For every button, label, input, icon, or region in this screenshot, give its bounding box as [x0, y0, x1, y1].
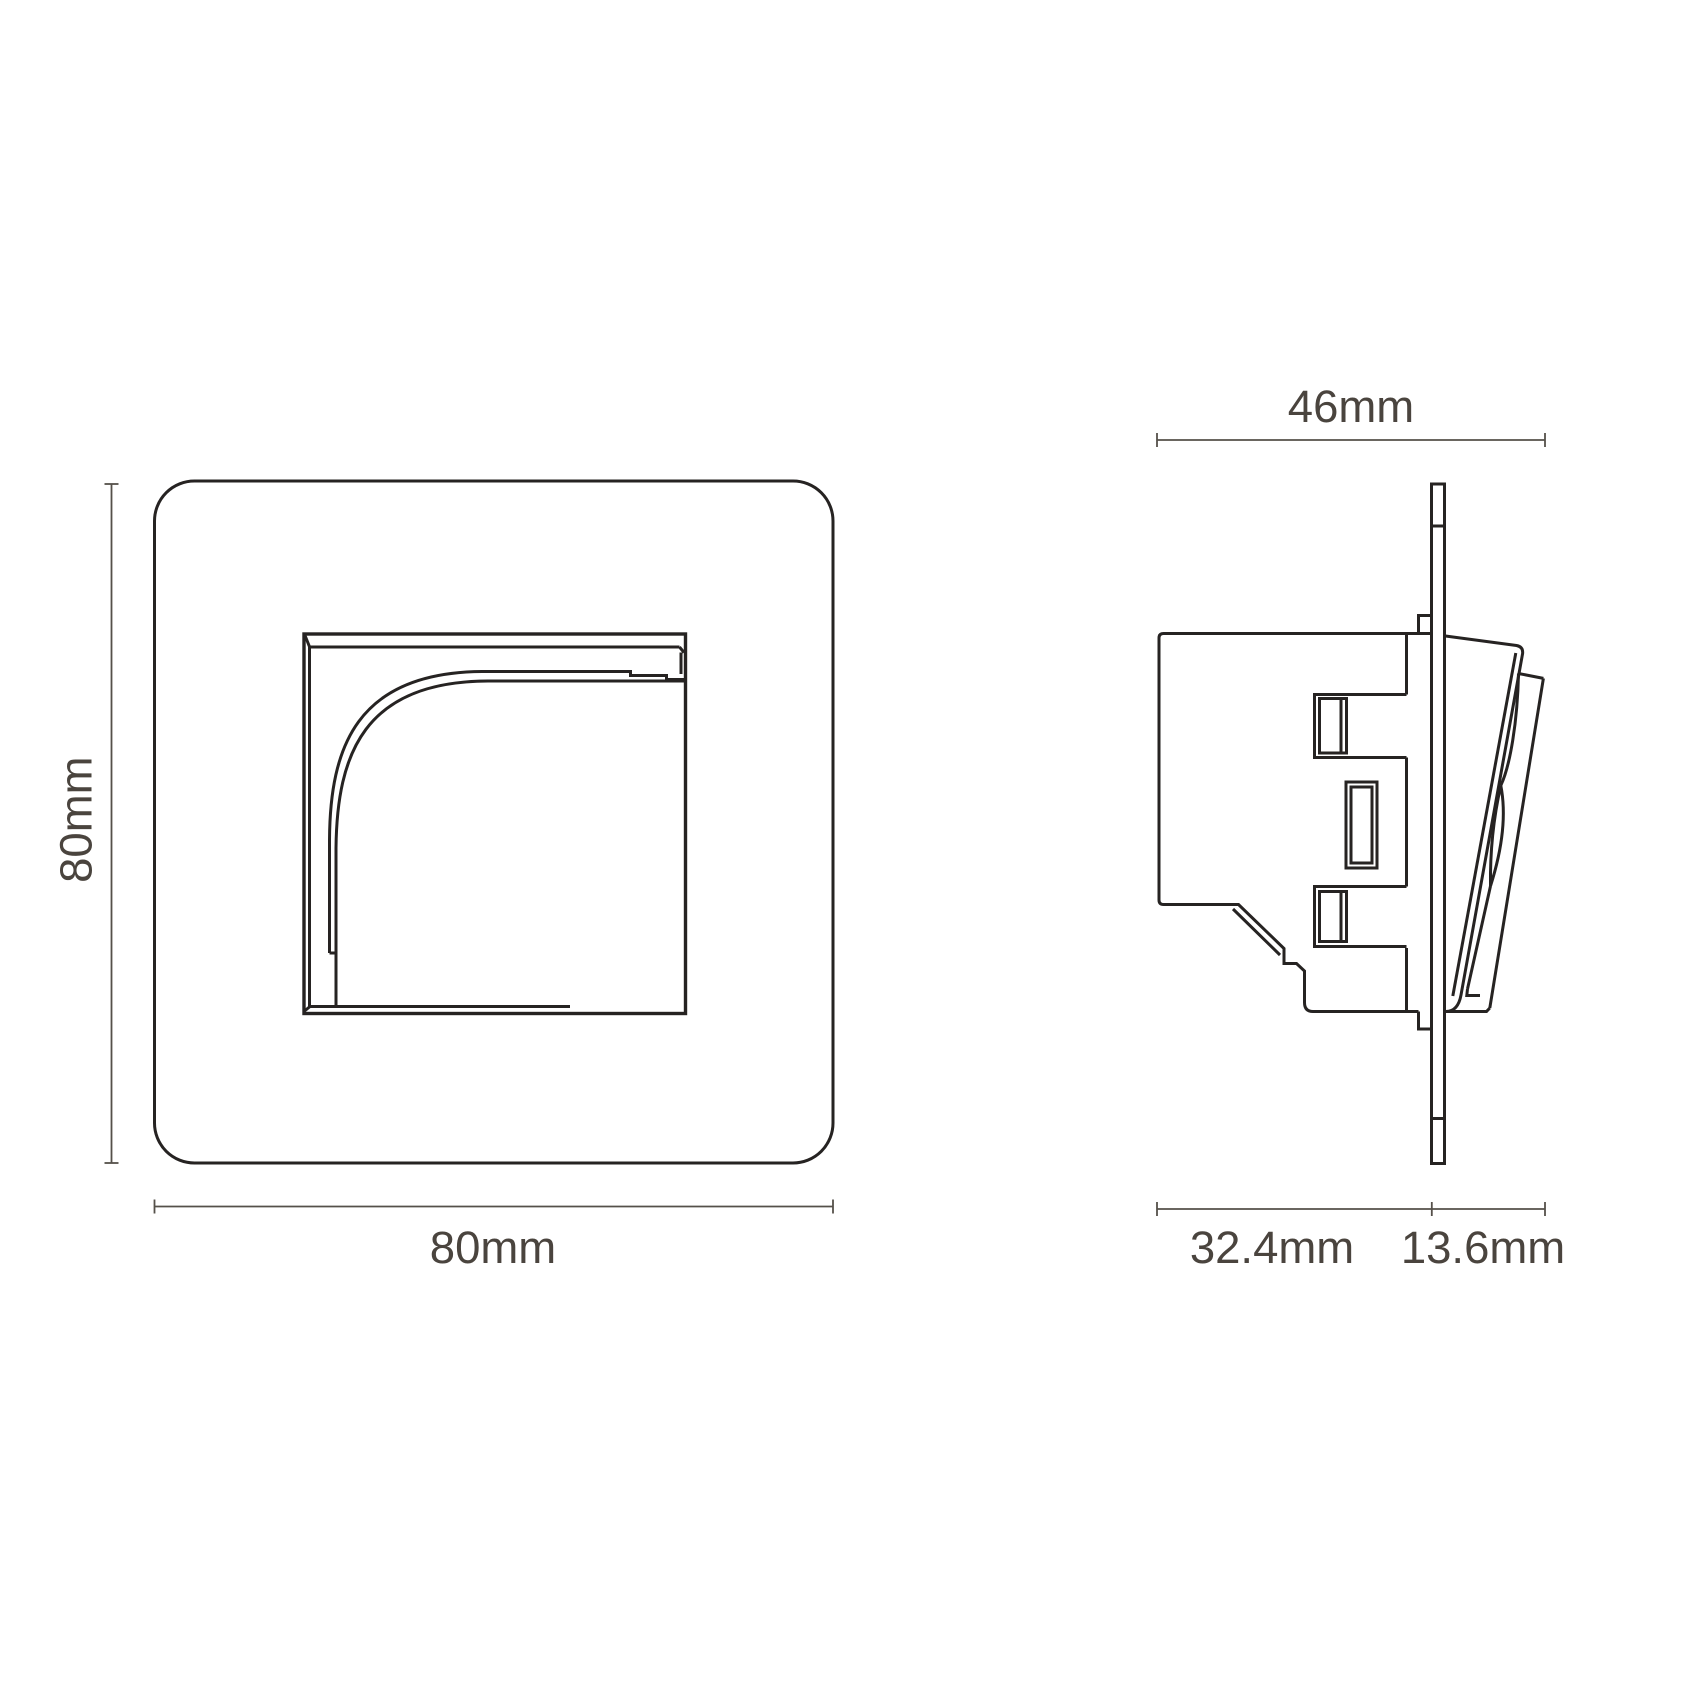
svg-text:32.4mm: 32.4mm [1190, 1222, 1354, 1273]
svg-text:46mm: 46mm [1288, 381, 1414, 432]
svg-text:80mm: 80mm [51, 756, 102, 882]
svg-text:80mm: 80mm [430, 1222, 556, 1273]
svg-text:13.6mm: 13.6mm [1401, 1222, 1565, 1273]
